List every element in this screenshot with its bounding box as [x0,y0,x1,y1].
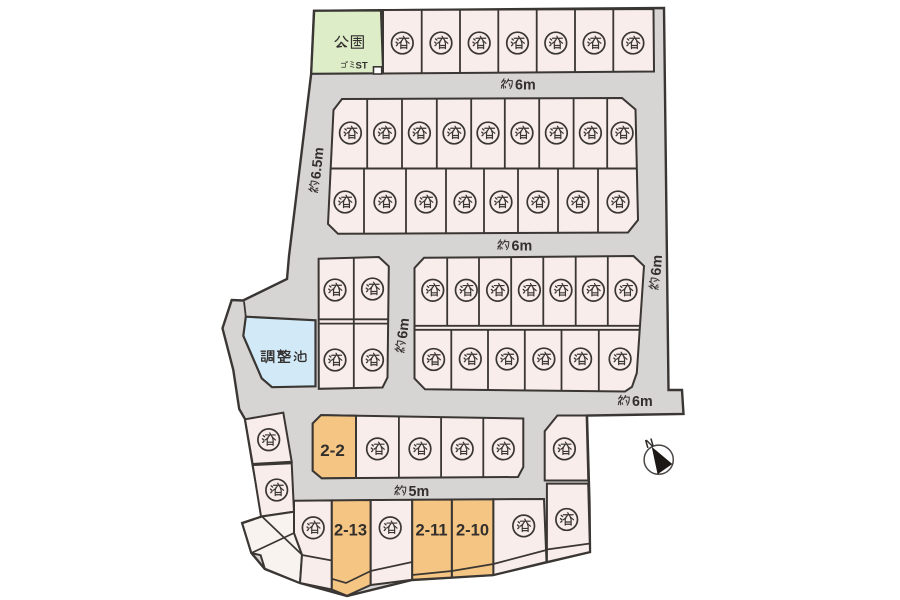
svg-text:2-10: 2-10 [456,522,489,540]
svg-text:2-13: 2-13 [334,522,367,540]
svg-text:6.5m: 6.5m [307,146,326,179]
svg-text:2-2: 2-2 [320,441,345,460]
svg-text:N: N [643,435,655,451]
svg-text:ST: ST [356,61,368,72]
svg-text:2-11: 2-11 [415,522,447,540]
